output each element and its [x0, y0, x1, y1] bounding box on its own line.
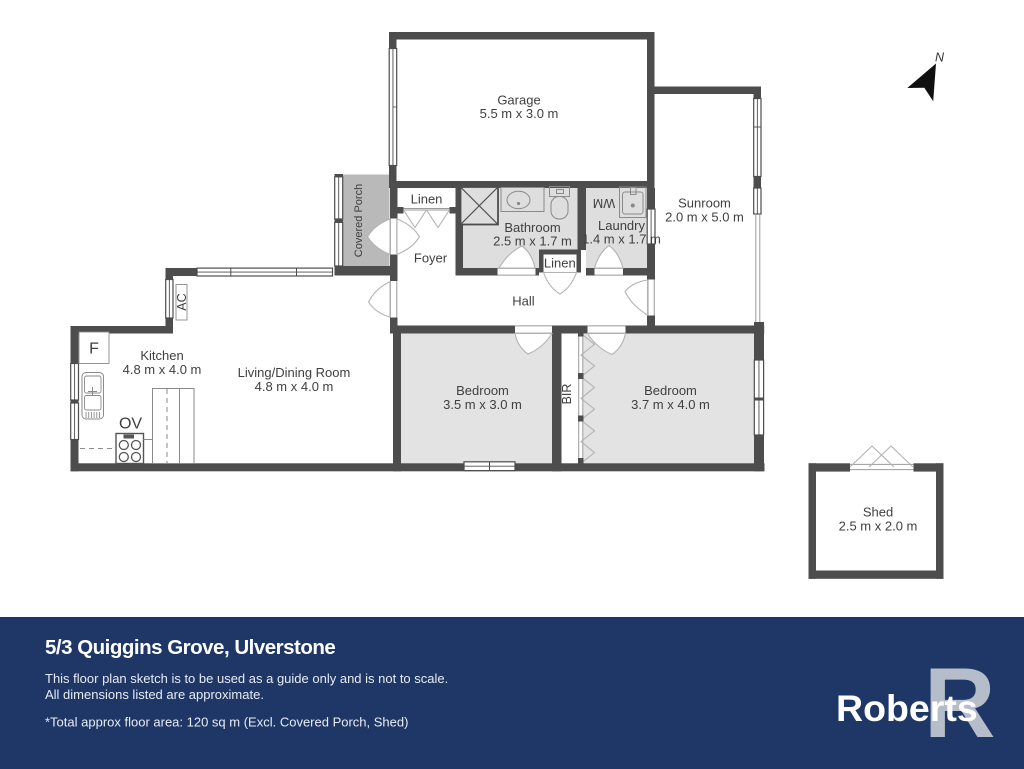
svg-text:5/3 Quiggins Grove, Ulverstone: 5/3 Quiggins Grove, Ulverstone: [45, 636, 335, 659]
svg-text:3.5 m x 3.0 m: 3.5 m x 3.0 m: [443, 397, 522, 412]
svg-text:Roberts: Roberts: [836, 687, 978, 729]
svg-text:All dimensions listed are appr: All dimensions listed are approximate.: [45, 687, 264, 702]
svg-text:BIR: BIR: [560, 384, 574, 405]
svg-text:Linen: Linen: [544, 256, 576, 271]
svg-text:OV: OV: [119, 416, 142, 433]
svg-text:2.5 m x 2.0 m: 2.5 m x 2.0 m: [839, 519, 918, 534]
svg-text:3.7 m x 4.0 m: 3.7 m x 4.0 m: [631, 397, 710, 412]
svg-text:Linen: Linen: [411, 192, 443, 207]
svg-text:Kitchen: Kitchen: [140, 348, 183, 363]
svg-text:This floor plan sketch is to b: This floor plan sketch is to be used as …: [45, 671, 448, 686]
svg-text:4.8 m x 4.0 m: 4.8 m x 4.0 m: [255, 379, 334, 394]
svg-text:WM: WM: [593, 196, 615, 210]
svg-text:N: N: [935, 51, 945, 65]
svg-text:Bedroom: Bedroom: [456, 383, 509, 398]
svg-text:2.5 m x 1.7 m: 2.5 m x 1.7 m: [493, 234, 572, 249]
svg-text:Living/Dining Room: Living/Dining Room: [238, 365, 351, 380]
svg-text:2.0 m x 5.0 m: 2.0 m x 5.0 m: [665, 210, 744, 225]
svg-text:Foyer: Foyer: [414, 251, 448, 266]
svg-text:Covered Porch: Covered Porch: [353, 184, 365, 257]
svg-text:AC: AC: [175, 293, 189, 310]
svg-text:4.8 m x 4.0 m: 4.8 m x 4.0 m: [123, 362, 202, 377]
svg-text:Sunroom: Sunroom: [678, 196, 731, 211]
svg-text:Shed: Shed: [863, 505, 893, 520]
svg-text:5.5 m x 3.0 m: 5.5 m x 3.0 m: [480, 106, 559, 121]
svg-text:F: F: [89, 341, 99, 358]
svg-text:1.4 m x 1.7 m: 1.4 m x 1.7 m: [582, 232, 661, 247]
svg-text:Bedroom: Bedroom: [644, 383, 697, 398]
svg-text:Hall: Hall: [512, 294, 535, 309]
svg-text:*Total approx floor area: 120: *Total approx floor area: 120 sq m (Excl…: [45, 715, 408, 730]
